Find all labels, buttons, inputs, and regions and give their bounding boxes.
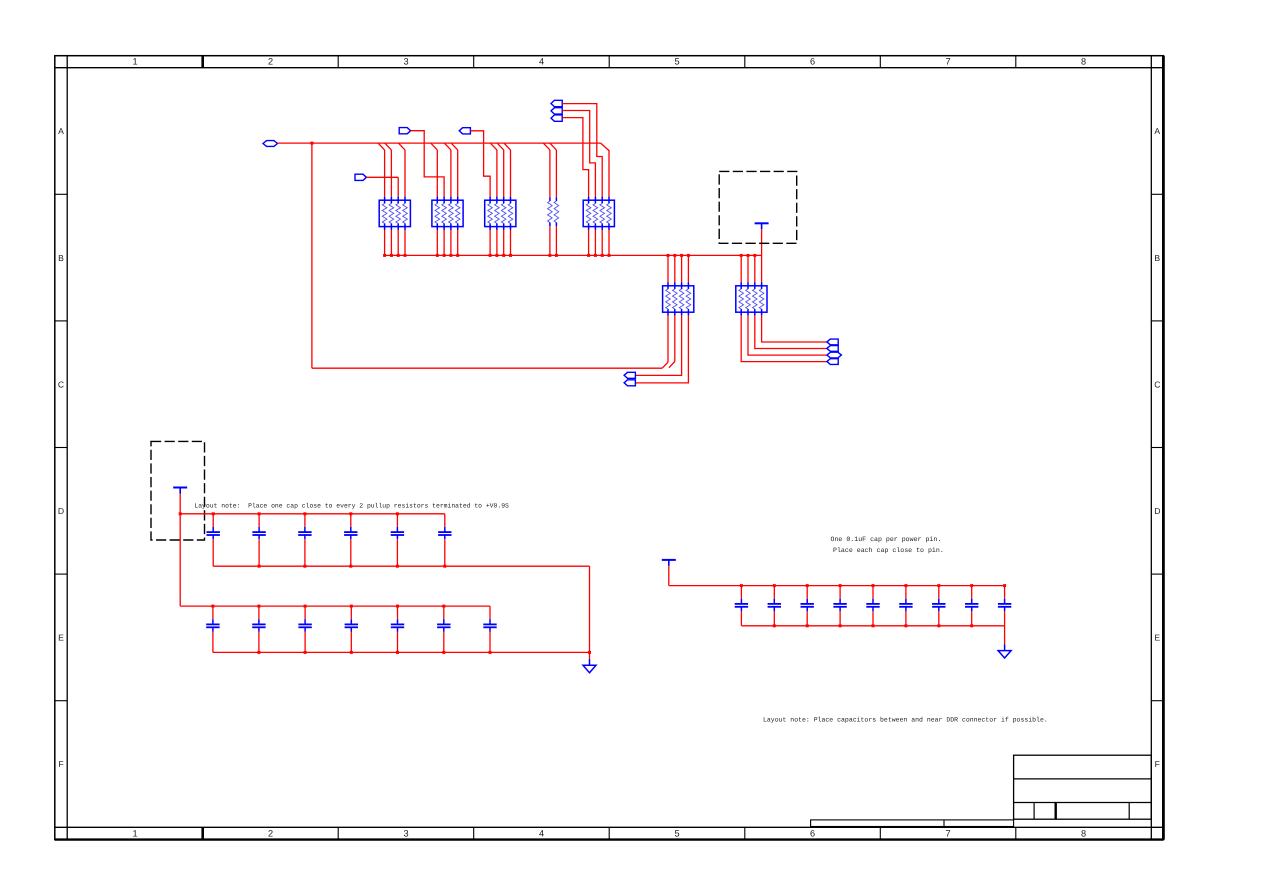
svg-text:Layout note: Place capacitors: Layout note: Place capacitors between an… xyxy=(763,717,1048,724)
svg-text:4: 4 xyxy=(539,829,544,839)
svg-text:8: 8 xyxy=(1081,829,1086,839)
svg-text:6: 6 xyxy=(810,829,815,839)
svg-text:E: E xyxy=(1154,633,1160,643)
svg-text:5: 5 xyxy=(674,829,679,839)
svg-text:3: 3 xyxy=(403,57,408,67)
svg-text:6: 6 xyxy=(810,57,815,67)
svg-text:C: C xyxy=(1154,379,1160,389)
svg-text:1: 1 xyxy=(132,829,137,839)
svg-text:5: 5 xyxy=(674,57,679,67)
svg-text:One 0.1uF cap per power pin.: One 0.1uF cap per power pin. xyxy=(831,536,942,543)
svg-text:1: 1 xyxy=(132,57,137,67)
svg-text:A: A xyxy=(1154,126,1160,136)
svg-text:D: D xyxy=(1154,506,1160,516)
svg-text:7: 7 xyxy=(945,57,950,67)
svg-text:E: E xyxy=(58,633,64,643)
svg-text:2: 2 xyxy=(268,829,273,839)
svg-text:7: 7 xyxy=(945,829,950,839)
svg-text:Place each cap close to pin.: Place each cap close to pin. xyxy=(833,547,944,554)
svg-text:3: 3 xyxy=(403,829,408,839)
svg-text:A: A xyxy=(58,126,64,136)
svg-text:D: D xyxy=(58,506,64,516)
svg-text:F: F xyxy=(1155,759,1160,769)
svg-text:B: B xyxy=(1154,253,1160,263)
svg-text:B: B xyxy=(58,253,64,263)
svg-text:F: F xyxy=(58,759,63,769)
svg-text:2: 2 xyxy=(268,57,273,67)
svg-text:Layout note: Place one cap cl: Layout note: Place one cap close to ever… xyxy=(194,502,509,509)
svg-text:C: C xyxy=(58,379,64,389)
svg-text:4: 4 xyxy=(539,57,544,67)
svg-text:8: 8 xyxy=(1081,57,1086,67)
